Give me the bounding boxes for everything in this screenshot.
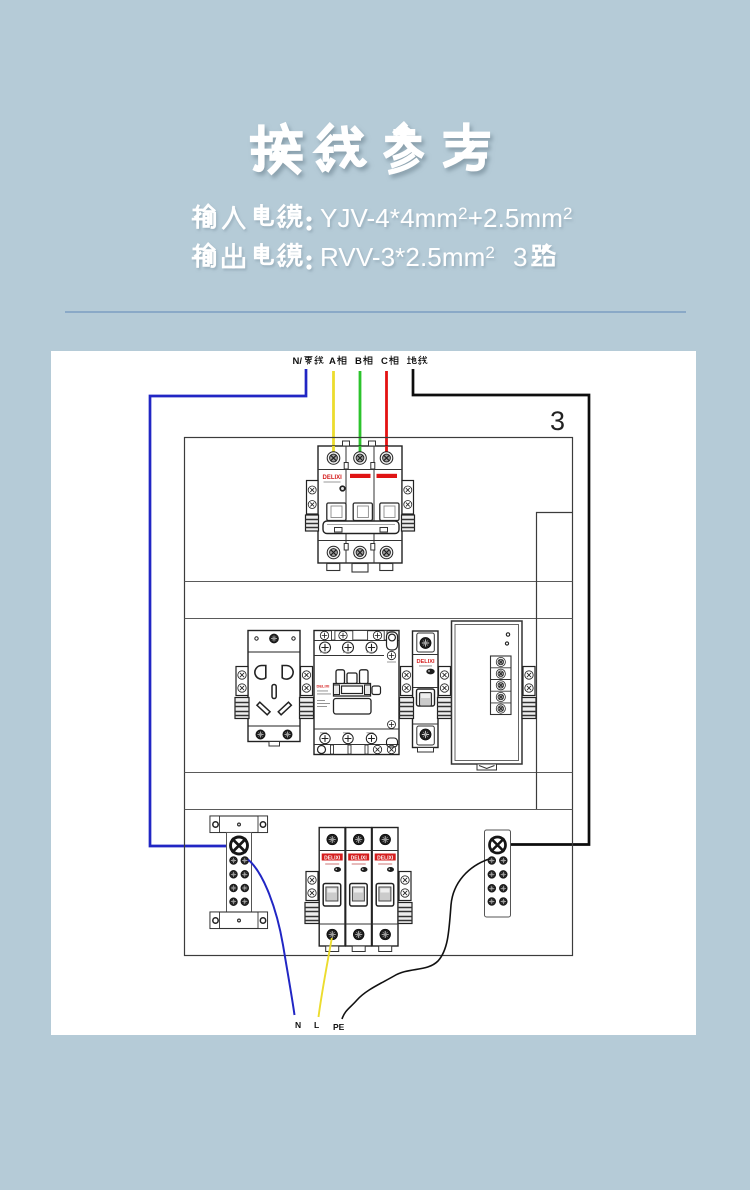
svg-text:PE: PE — [333, 1022, 345, 1032]
svg-text:A: A — [329, 356, 336, 367]
svg-text:3: 3 — [550, 406, 565, 436]
svg-text:L: L — [314, 1020, 319, 1030]
svg-text:DELIXI: DELIXI — [377, 855, 394, 861]
svg-text:N/: N/ — [293, 356, 303, 367]
svg-text:DELIXI: DELIXI — [416, 659, 434, 665]
svg-text:RVV-3*2.5mm2: RVV-3*2.5mm2 — [320, 242, 495, 272]
svg-text:DELIXI: DELIXI — [323, 475, 343, 481]
svg-text:DELIXI: DELIXI — [351, 855, 368, 861]
svg-text:DELIXI: DELIXI — [317, 684, 330, 689]
svg-text:B: B — [355, 356, 362, 367]
svg-text:3: 3 — [513, 242, 527, 272]
svg-text:N: N — [295, 1020, 301, 1030]
svg-text:DELIXI: DELIXI — [324, 855, 341, 861]
svg-text:C: C — [381, 356, 388, 367]
svg-text:YJV-4*4mm2+2.5mm2: YJV-4*4mm2+2.5mm2 — [320, 203, 573, 233]
